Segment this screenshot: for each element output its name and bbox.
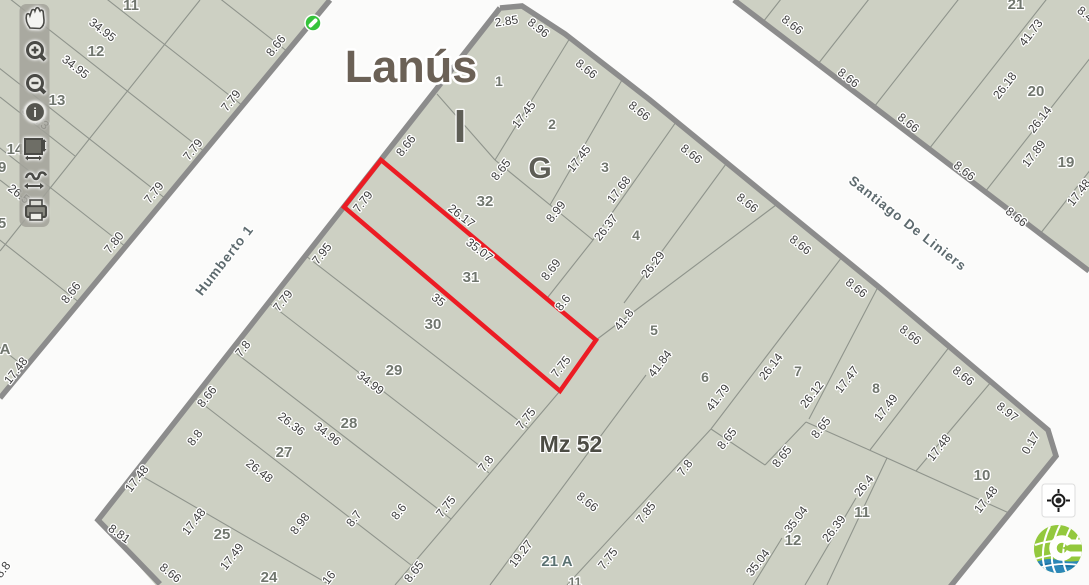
svg-text:A: A — [0, 341, 11, 358]
svg-text:Mz 52: Mz 52 — [540, 431, 603, 457]
svg-text:11: 11 — [123, 0, 139, 14]
svg-text:24: 24 — [261, 569, 278, 585]
svg-text:20: 20 — [1028, 83, 1045, 100]
svg-text:5: 5 — [0, 215, 6, 232]
svg-text:G: G — [528, 152, 551, 185]
svg-text:27: 27 — [276, 444, 293, 461]
svg-text:28: 28 — [341, 415, 358, 432]
svg-text:12: 12 — [88, 43, 105, 60]
svg-text:I: I — [454, 100, 467, 152]
svg-text:7: 7 — [794, 363, 802, 379]
svg-text:31: 31 — [463, 269, 480, 286]
svg-text:12: 12 — [785, 532, 802, 549]
svg-text:21: 21 — [1008, 0, 1025, 13]
svg-text:39: 39 — [0, 159, 6, 176]
svg-text:11: 11 — [569, 575, 582, 585]
svg-text:13: 13 — [49, 92, 66, 109]
svg-text:Lanús: Lanús — [345, 41, 478, 92]
svg-text:30: 30 — [425, 316, 442, 333]
svg-text:19: 19 — [1058, 154, 1075, 171]
svg-text:29: 29 — [386, 362, 403, 379]
svg-text:21 A: 21 A — [541, 553, 572, 570]
svg-text:5: 5 — [650, 322, 658, 338]
svg-text:3: 3 — [601, 159, 609, 175]
svg-text:4: 4 — [632, 227, 640, 243]
svg-text:25: 25 — [214, 526, 231, 543]
svg-text:i: i — [33, 105, 37, 120]
svg-text:1: 1 — [495, 73, 503, 89]
svg-text:11: 11 — [854, 504, 870, 521]
svg-text:6: 6 — [701, 369, 709, 385]
svg-text:32: 32 — [477, 193, 494, 210]
svg-text:8: 8 — [872, 380, 880, 396]
svg-text:2: 2 — [548, 116, 556, 132]
svg-text:10: 10 — [974, 467, 991, 484]
